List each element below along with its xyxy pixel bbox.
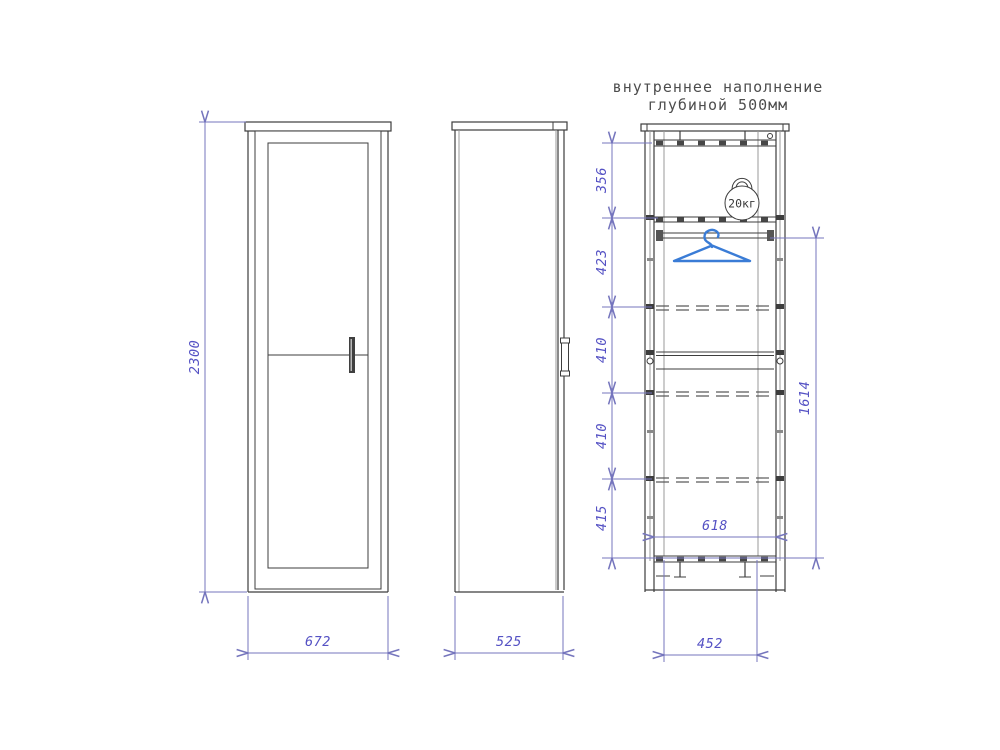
internal-top-panel xyxy=(641,124,789,131)
pin-mark-5 xyxy=(647,516,653,519)
kettlebell-icon: 20кг xyxy=(725,178,759,220)
pin-r3 xyxy=(776,476,784,481)
kettlebell-weight-label: 20кг xyxy=(728,197,756,211)
wardrobe-technical-drawing: внутреннее наполнение глубиной 500мм xyxy=(0,0,1000,750)
mid-shelf-tick-r xyxy=(776,350,784,355)
pin-r1 xyxy=(776,304,784,309)
mid-shelf-tick-l xyxy=(646,350,654,355)
pin-r2 xyxy=(776,390,784,395)
mid-cam-left xyxy=(647,358,653,364)
drawing-title: внутреннее наполнение глубиной 500мм xyxy=(613,78,824,114)
dim-label-section-3: 410 xyxy=(594,337,610,363)
dim-label-section-5: 415 xyxy=(594,505,610,531)
mid-cam-right xyxy=(777,358,783,364)
side-handle-icon xyxy=(562,338,569,376)
dim-label-internal-inner-width: 618 xyxy=(702,518,728,534)
dim-label-hanging-zone: 1614 xyxy=(797,381,813,416)
side-handle-top-mount xyxy=(561,338,570,343)
title-line-2: глубиной 500мм xyxy=(648,96,788,114)
pin-mark-2 xyxy=(777,258,783,261)
shelf1-cam-right xyxy=(776,215,784,220)
title-line-1: внутреннее наполнение xyxy=(613,78,824,96)
dim-label-section-4: 410 xyxy=(594,423,610,449)
side-top-panel xyxy=(452,122,567,130)
dim-label-section-2: 423 xyxy=(594,249,610,275)
pin-mark-4 xyxy=(777,430,783,433)
dim-label-front-height: 2300 xyxy=(187,340,203,375)
side-view xyxy=(452,122,570,592)
hanger-icon xyxy=(674,230,750,261)
adjustable-shelf-positions xyxy=(646,304,784,482)
rod-bracket-right xyxy=(767,230,774,241)
internal-bottom xyxy=(645,556,785,590)
pin-mark-3 xyxy=(647,430,653,433)
dim-label-front-width: 672 xyxy=(305,634,331,650)
dim-label-internal-bottom-width: 452 xyxy=(697,636,723,652)
dim-label-side-depth: 525 xyxy=(496,634,522,650)
dim-front-height: 2300 xyxy=(187,122,247,592)
dim-internal-bottom-width: 452 xyxy=(664,560,757,662)
side-handle-bottom-mount xyxy=(561,371,570,376)
dim-hanging-zone: 1614 xyxy=(602,238,824,558)
rod-bracket-left xyxy=(656,230,663,241)
dim-front-width: 672 xyxy=(248,596,388,660)
front-top-panel xyxy=(245,122,391,131)
top-cam-lock xyxy=(768,134,773,139)
front-door xyxy=(255,131,381,589)
middle-fixed-shelf xyxy=(646,350,784,369)
pin-mark-1 xyxy=(647,258,653,261)
drawing-sheet: внутреннее наполнение глубиной 500мм xyxy=(0,0,1000,750)
door-handle-highlight xyxy=(351,339,353,371)
dim-side-depth: 525 xyxy=(455,596,563,660)
pin-mark-6 xyxy=(777,516,783,519)
dim-label-section-1: 356 xyxy=(594,167,610,194)
front-view xyxy=(245,122,391,592)
